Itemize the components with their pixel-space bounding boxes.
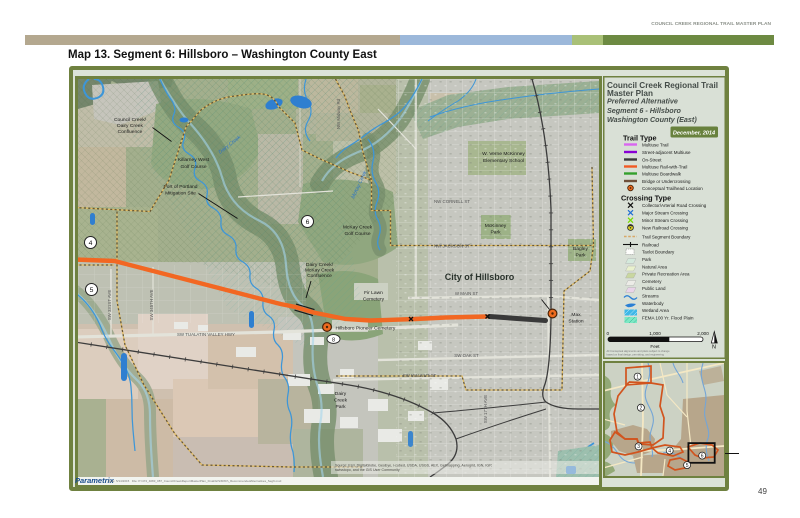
svg-text:Multiuse Trail: Multiuse Trail xyxy=(642,142,669,147)
svg-text:5: 5 xyxy=(89,287,93,294)
svg-text:Dairy Creek: Dairy Creek xyxy=(117,123,143,129)
svg-text:Cemetery: Cemetery xyxy=(642,279,662,284)
svg-text:SW OAK ST: SW OAK ST xyxy=(454,353,479,358)
svg-text:2: 2 xyxy=(640,406,643,412)
svg-text:4: 4 xyxy=(668,448,671,454)
svg-text:Multiuse Rail-with-Trail: Multiuse Rail-with-Trail xyxy=(642,164,687,169)
svg-text:0: 0 xyxy=(607,331,610,336)
svg-text:Washington County (East): Washington County (East) xyxy=(607,115,697,124)
svg-text:Natural Area: Natural Area xyxy=(642,264,668,269)
svg-text:Dairy: Dairy xyxy=(334,391,346,397)
svg-text:Park: Park xyxy=(335,404,346,410)
svg-text:Confluence: Confluence xyxy=(307,273,332,279)
svg-text:NW Midway Rd: NW Midway Rd xyxy=(336,98,341,129)
svg-text:Public Land: Public Land xyxy=(642,286,666,291)
svg-text:Trail Segment Boundary: Trail Segment Boundary xyxy=(642,234,691,239)
svg-text:SW 345TH AVE: SW 345TH AVE xyxy=(149,289,154,320)
svg-text:FEMA 100 Yr. Flood Plain: FEMA 100 Yr. Flood Plain xyxy=(642,315,694,320)
svg-text:Golf Course: Golf Course xyxy=(344,231,370,237)
svg-text:Port of Portland: Port of Portland xyxy=(163,184,197,190)
svg-text:Streams: Streams xyxy=(642,293,660,298)
svg-text:6: 6 xyxy=(305,219,309,226)
svg-text:Crossing Type: Crossing Type xyxy=(621,193,671,202)
svg-text:3: 3 xyxy=(637,444,640,450)
svg-text:8: 8 xyxy=(331,337,334,343)
svg-text:Conceptual Trailhead Location: Conceptual Trailhead Location xyxy=(642,186,703,191)
svg-text:McKay Creek: McKay Creek xyxy=(342,224,372,230)
svg-text:Segment 6 - Hillsboro: Segment 6 - Hillsboro xyxy=(607,106,681,115)
svg-text:Council Creek/: Council Creek/ xyxy=(113,117,146,123)
svg-text:New Railroad Crossing: New Railroad Crossing xyxy=(642,225,689,230)
svg-text:W MAIN ST: W MAIN ST xyxy=(454,291,477,296)
svg-text:Creek: Creek xyxy=(333,397,347,403)
svg-text:Golf Course: Golf Course xyxy=(180,164,206,170)
svg-text:Station: Station xyxy=(568,318,584,324)
svg-text:Dairy Creek/: Dairy Creek/ xyxy=(305,262,333,268)
svg-text:McKinney: McKinney xyxy=(484,223,506,229)
svg-text:Confluence: Confluence xyxy=(117,129,142,135)
svg-text:City of Hillsboro: City of Hillsboro xyxy=(444,272,514,282)
svg-text:Killarney West: Killarney West xyxy=(177,157,209,163)
svg-text:December, 2014: December, 2014 xyxy=(673,130,716,136)
svg-text:1: 1 xyxy=(636,374,639,380)
svg-text:N: N xyxy=(712,344,716,350)
svg-text:Mitigation Site: Mitigation Site xyxy=(165,190,196,196)
svg-text:6: 6 xyxy=(701,453,704,459)
svg-text:SW TUALATIN VALLEY HWY: SW TUALATIN VALLEY HWY xyxy=(177,332,235,337)
svg-text:Multiuse Boardwalk: Multiuse Boardwalk xyxy=(642,171,682,176)
svg-text:Bagley: Bagley xyxy=(573,246,589,252)
svg-text:Bridge or Undercrossing: Bridge or Undercrossing xyxy=(642,179,691,184)
svg-text:Cemetery: Cemetery xyxy=(362,296,384,302)
svg-text:Wetland Area: Wetland Area xyxy=(642,308,669,313)
svg-text:On-Street: On-Street xyxy=(642,157,662,162)
svg-text:Park: Park xyxy=(642,257,652,262)
svg-text:Fir Lawn: Fir Lawn xyxy=(364,290,383,296)
svg-text:Park: Park xyxy=(490,229,501,235)
svg-text:Collector/Arterial Road Crossi: Collector/Arterial Road Crossing xyxy=(642,203,707,208)
svg-text:Private Recreation Area: Private Recreation Area xyxy=(642,271,690,276)
svg-text:All Conceptual alignments and: All Conceptual alignments and plans subj… xyxy=(607,349,671,353)
svg-text:1,000: 1,000 xyxy=(649,331,661,336)
svg-text:SW 17TH AVE: SW 17TH AVE xyxy=(483,394,488,423)
svg-text:SW WALNUT ST: SW WALNUT ST xyxy=(402,373,436,378)
svg-text:W. Verne McKinney: W. Verne McKinney xyxy=(482,151,525,157)
svg-text:based on final design, permitt: based on final design, permitting, and e… xyxy=(607,352,665,356)
svg-text:NW JACKSON ST: NW JACKSON ST xyxy=(433,243,469,248)
svg-text:swisstopo, and the GIS User Co: swisstopo, and the GIS User Community xyxy=(335,468,400,472)
svg-text:Source: Esri, DigitalGlobe, Ge: Source: Esri, DigitalGlobe, GeoEye, i-cu… xyxy=(335,463,492,467)
svg-text:Feet: Feet xyxy=(650,344,660,349)
svg-text:Hillsboro Pioneer Cemetery: Hillsboro Pioneer Cemetery xyxy=(335,325,395,331)
svg-text:Waterbody: Waterbody xyxy=(642,301,664,306)
svg-text:NW CORNELL ST: NW CORNELL ST xyxy=(434,199,470,204)
svg-text:Max: Max xyxy=(571,312,581,318)
svg-text:McKay Creek: McKay Creek xyxy=(304,267,334,273)
svg-text:Preferred Alternative: Preferred Alternative xyxy=(607,96,678,105)
svg-text:Park: Park xyxy=(575,252,586,258)
svg-text:Street-adjacent Multiuse: Street-adjacent Multiuse xyxy=(642,150,691,155)
svg-text:4: 4 xyxy=(88,240,92,247)
svg-text:Major Stream Crossing: Major Stream Crossing xyxy=(642,210,689,215)
svg-text:Railroad: Railroad xyxy=(642,242,659,247)
svg-text:5: 5 xyxy=(686,463,689,469)
svg-text:2,000: 2,000 xyxy=(697,331,709,336)
svg-text:SW 331ST AVE: SW 331ST AVE xyxy=(107,289,112,320)
svg-text:Minor Stream Crossing: Minor Stream Crossing xyxy=(642,218,689,223)
svg-text:Elementary School: Elementary School xyxy=(482,158,523,164)
svg-text:Taxlot Boundary: Taxlot Boundary xyxy=(642,249,675,254)
svg-text:Trail Type: Trail Type xyxy=(623,133,657,142)
